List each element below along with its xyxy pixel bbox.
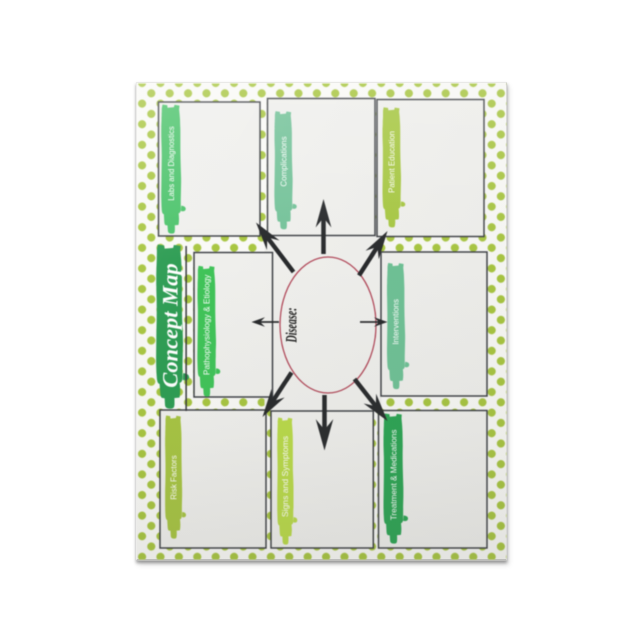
svg-text:Patient Education: Patient Education: [387, 130, 396, 192]
svg-text:Concept Map: Concept Map: [157, 263, 182, 387]
svg-text:Labs and Diagnostics: Labs and Diagnostics: [167, 126, 176, 201]
svg-text:Interventions: Interventions: [391, 298, 400, 344]
svg-text:Pathophysiology & Etiology: Pathophysiology & Etiology: [201, 273, 211, 374]
svg-text:Risk Factors: Risk Factors: [169, 455, 178, 499]
svg-text:Complications: Complications: [279, 136, 288, 186]
svg-text:Disease:: Disease:: [281, 307, 299, 343]
svg-text:Signs and Symptoms: Signs and Symptoms: [280, 435, 290, 516]
svg-text:Treatment & Medications: Treatment & Medications: [389, 429, 398, 520]
